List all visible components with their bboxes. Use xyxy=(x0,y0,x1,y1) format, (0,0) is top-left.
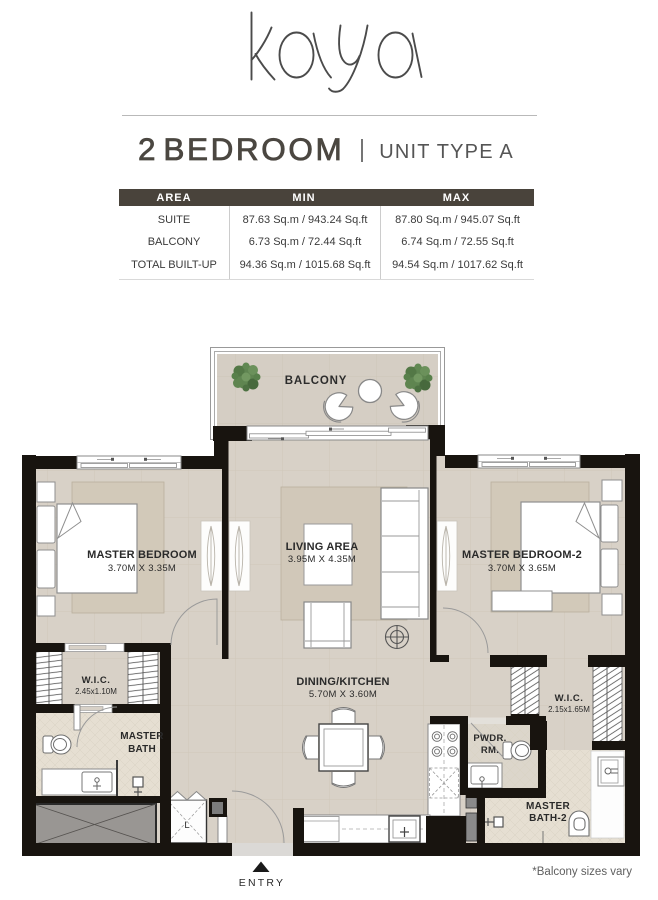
svg-text:MASTER: MASTER xyxy=(526,801,570,812)
svg-text:MASTER BEDROOM-2: MASTER BEDROOM-2 xyxy=(462,549,582,561)
svg-text:3.95M X 4.35M: 3.95M X 4.35M xyxy=(288,554,356,565)
svg-text:MASTER BEDROOM: MASTER BEDROOM xyxy=(87,549,197,561)
svg-text:PWDR.: PWDR. xyxy=(473,733,506,744)
svg-text:2.45x1.10M: 2.45x1.10M xyxy=(75,687,117,696)
svg-text:BATH: BATH xyxy=(128,744,156,755)
svg-text:ENTRY: ENTRY xyxy=(239,877,285,889)
svg-text:3.70M X 3.35M: 3.70M X 3.35M xyxy=(108,563,176,574)
svg-text:BATH-2: BATH-2 xyxy=(529,813,567,824)
svg-text:5.70M X 3.60M: 5.70M X 3.60M xyxy=(309,689,377,700)
svg-text:3.70M X 3.65M: 3.70M X 3.65M xyxy=(488,563,556,574)
svg-text:MASTER: MASTER xyxy=(120,731,164,742)
svg-text:L: L xyxy=(184,820,189,831)
svg-text:W.I.C.: W.I.C. xyxy=(82,675,111,686)
svg-text:LIVING AREA: LIVING AREA xyxy=(286,541,359,553)
svg-text:DINING/KITCHEN: DINING/KITCHEN xyxy=(296,676,389,688)
svg-text:2.15x1.65M: 2.15x1.65M xyxy=(548,705,590,714)
svg-text:W.I.C.: W.I.C. xyxy=(555,693,584,704)
svg-text:RM.: RM. xyxy=(481,745,499,756)
svg-text:BALCONY: BALCONY xyxy=(285,375,347,387)
